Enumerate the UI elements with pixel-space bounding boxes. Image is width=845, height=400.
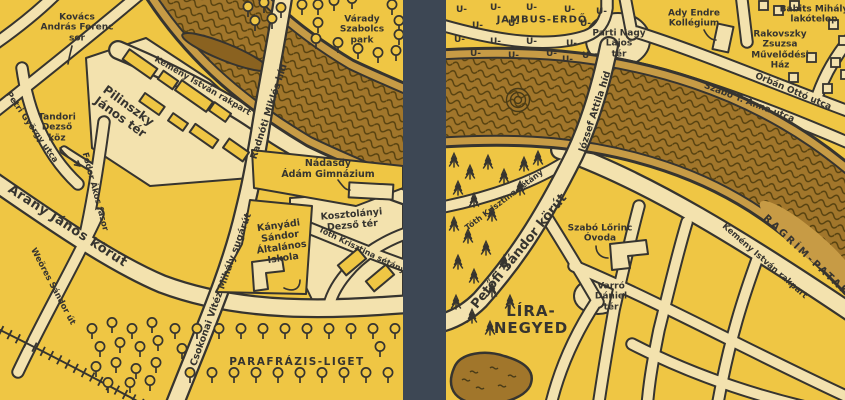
iamb-symbol: U- [546, 49, 557, 59]
iamb-symbol: U- [508, 51, 519, 61]
iamb-symbol: U- [582, 51, 593, 61]
iamb-symbol: U- [526, 3, 537, 13]
iamb-symbol: U- [470, 49, 481, 59]
ovoda-building [610, 240, 648, 270]
iamb-symbol: U- [456, 5, 467, 15]
iamb-symbol: U- [490, 37, 501, 47]
iamb-symbol: U- [564, 5, 575, 15]
iamb-symbol: U- [566, 39, 577, 49]
map-panel-left: Kovács András Ferenc sor Kemény István r… [0, 0, 403, 400]
map-stage: Kovács András Ferenc sor Kemény István r… [0, 0, 845, 400]
iamb-symbol: U- [490, 3, 501, 13]
kollegium-building [712, 24, 733, 53]
pond [451, 353, 532, 400]
iamb-symbol: U- [596, 7, 607, 17]
iamb-symbol: U- [472, 21, 483, 31]
iamb-symbol: U- [508, 19, 519, 29]
map-panel-right: U- U- U- U- U- U- U- U- U- U- U- U- U- U… [446, 0, 845, 400]
gimnazium-building [349, 182, 394, 199]
panel-divider [403, 0, 446, 400]
left-map-art [0, 0, 403, 400]
iamb-symbol: U- [454, 35, 465, 45]
iamb-symbol: U- [526, 37, 537, 47]
right-map-art: U- U- U- U- U- U- U- U- U- U- U- U- U- U… [446, 0, 845, 400]
iamb-symbol: U- [562, 55, 573, 65]
iamb-symbol: U- [580, 19, 591, 29]
